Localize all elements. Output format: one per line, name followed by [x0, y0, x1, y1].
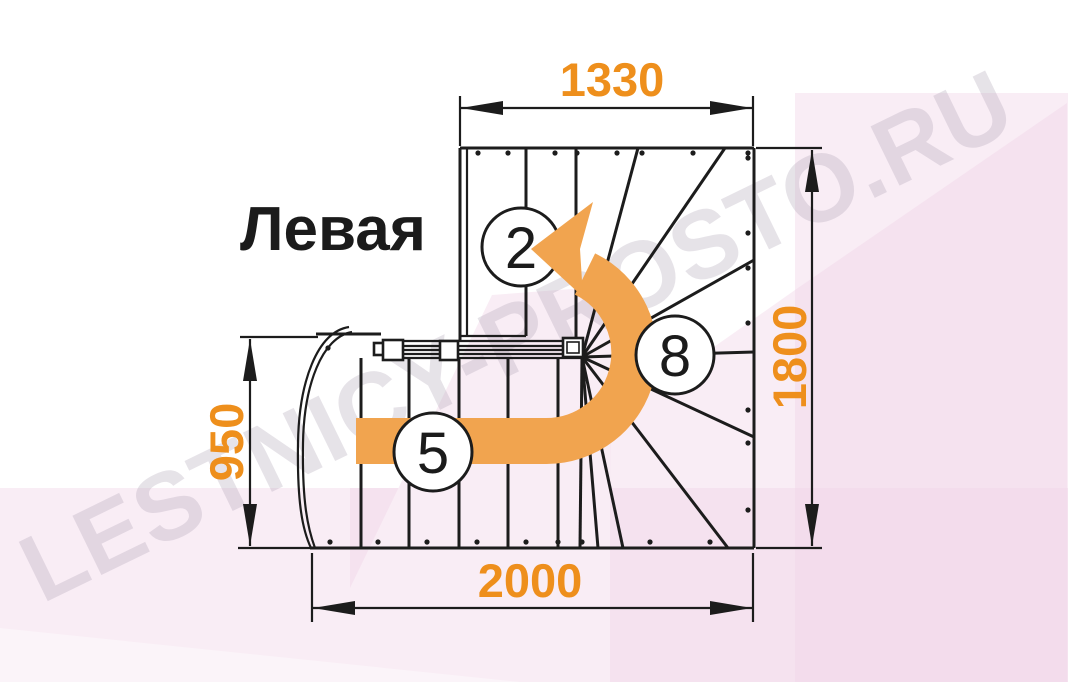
- baluster-dot: [552, 150, 557, 155]
- dimension-left-label: 950: [200, 403, 253, 481]
- baluster-dot: [375, 539, 380, 544]
- plan-title: Левая: [240, 195, 426, 264]
- newel-post-hub: [563, 338, 583, 357]
- baluster-dot: [707, 539, 712, 544]
- baluster-dot: [475, 150, 480, 155]
- step-number-lower: 5: [417, 421, 449, 486]
- staircase-plan-svg: LESTNICY-PROSTO.RU: [0, 0, 1068, 682]
- baluster-dot: [639, 150, 644, 155]
- baluster-dot: [474, 539, 479, 544]
- baluster-dot: [505, 150, 510, 155]
- baluster-dot: [424, 539, 429, 544]
- baluster-dot: [690, 150, 695, 155]
- staircase-drawing-page: LESTNICY-PROSTO.RU: [0, 0, 1068, 682]
- baluster-dot: [745, 440, 750, 445]
- newel-post: [440, 341, 458, 360]
- baluster-dot: [579, 539, 584, 544]
- step-number-winder: 8: [659, 324, 691, 389]
- baluster-dot: [574, 150, 579, 155]
- baluster-dot: [325, 345, 330, 350]
- baluster-dot: [745, 150, 750, 155]
- baluster-dot: [745, 507, 750, 512]
- baluster-dot: [555, 539, 560, 544]
- baluster-dot: [745, 265, 750, 270]
- baluster-dot: [745, 155, 750, 160]
- baluster-dot: [745, 320, 750, 325]
- dimension-right-label: 1800: [763, 305, 816, 410]
- baluster-dot: [523, 539, 528, 544]
- dimension-bottom-label: 2000: [478, 554, 583, 607]
- baluster-dot: [647, 539, 652, 544]
- baluster-dot: [327, 539, 332, 544]
- newel-post: [383, 340, 403, 360]
- dimension-top-label: 1330: [560, 53, 665, 106]
- baluster-dot: [745, 407, 750, 412]
- baluster-dot: [614, 150, 619, 155]
- baluster-dot: [745, 230, 750, 235]
